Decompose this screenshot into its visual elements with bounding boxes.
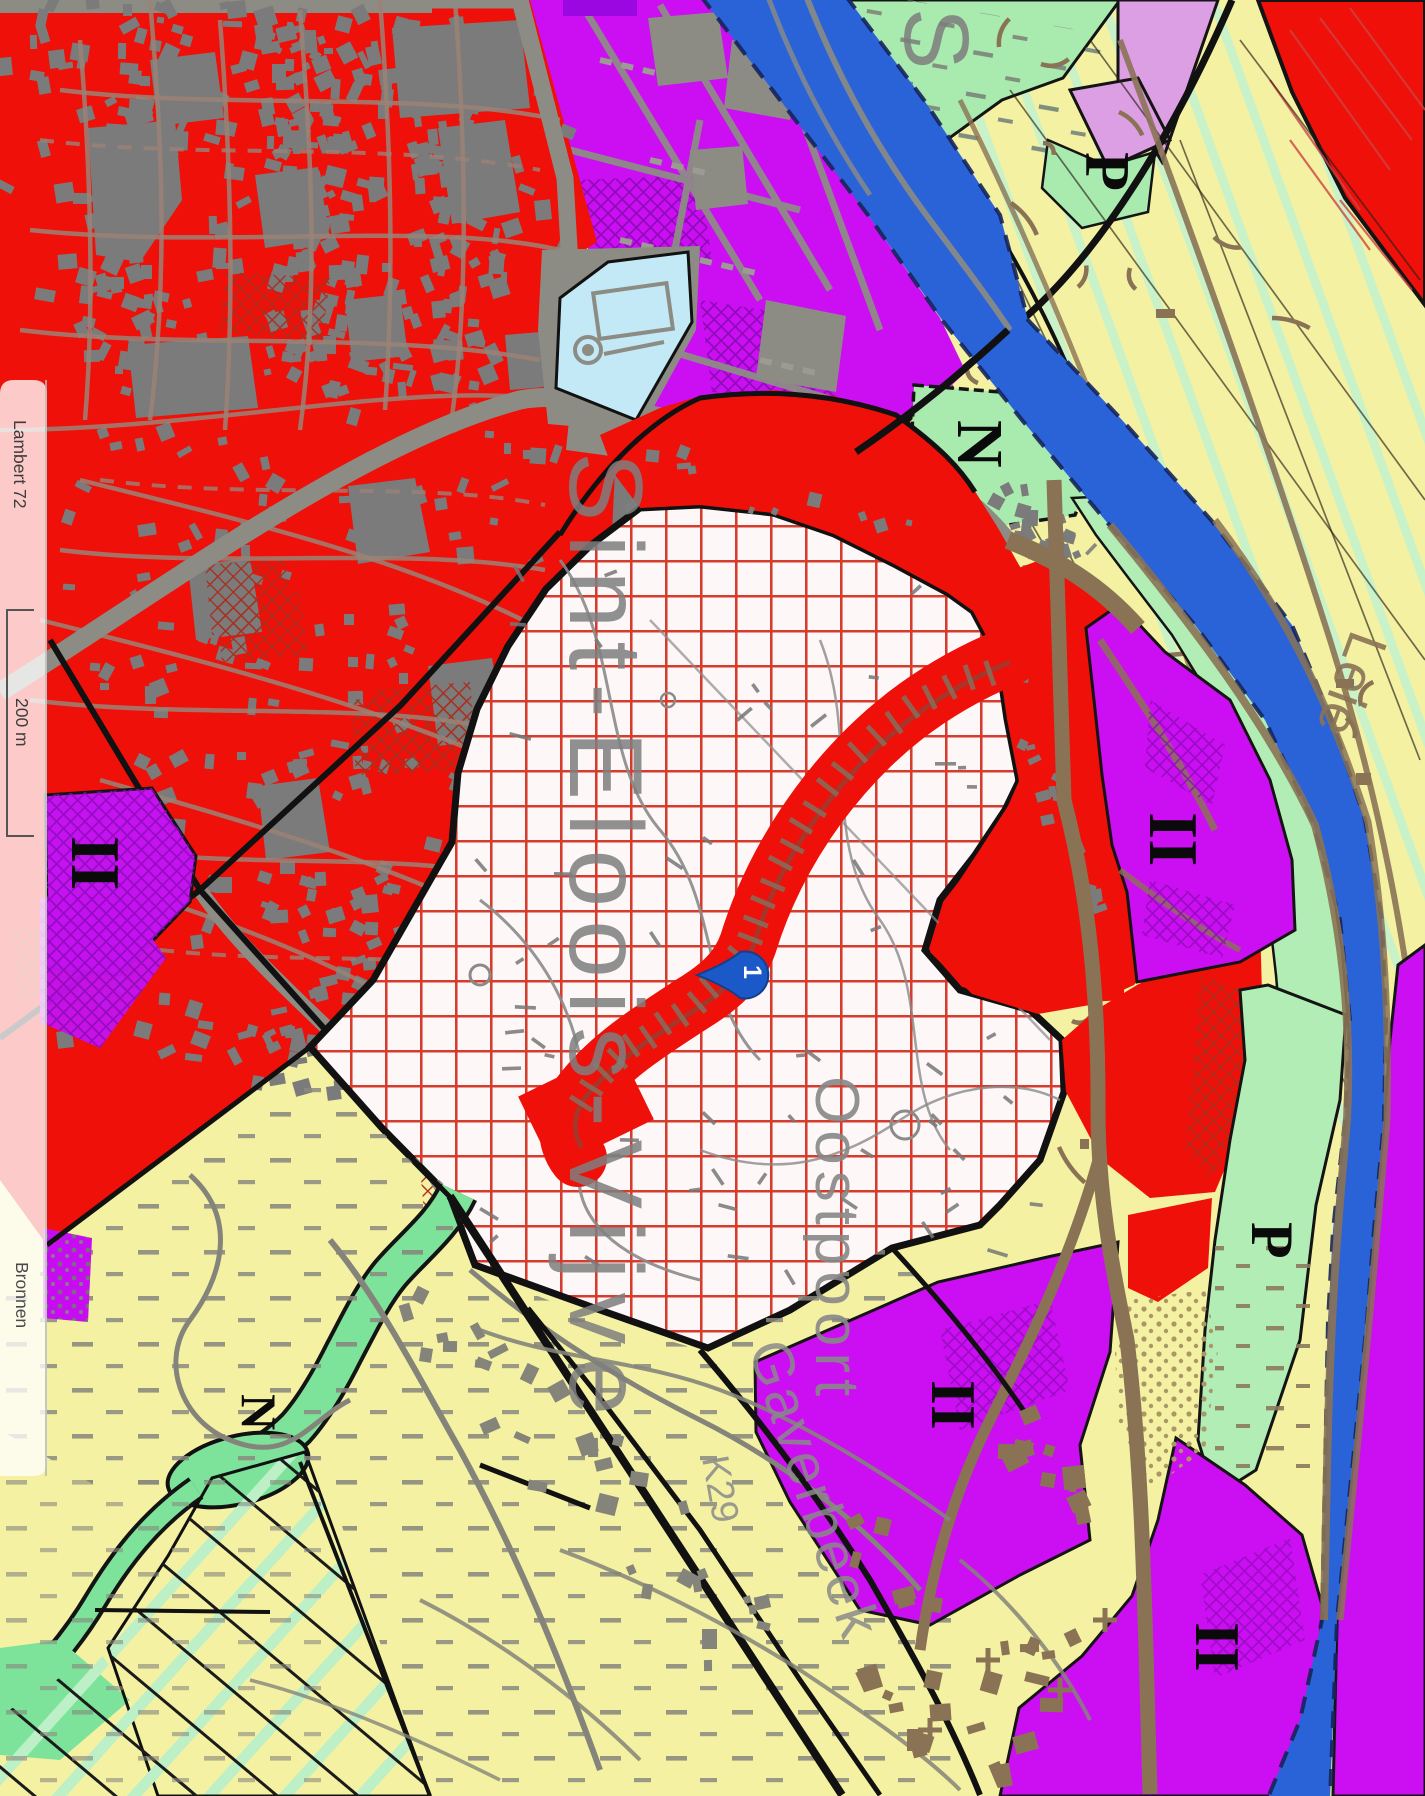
svg-text:P: P [1072,152,1143,191]
svg-text:II: II [56,836,133,890]
svg-text:1: 1 [738,965,766,979]
svg-text:Oostpoort: Oostpoort [802,1076,871,1402]
svg-text:N: N [943,420,1016,468]
svg-text:Bronnen: Bronnen [12,1262,32,1328]
svg-text:II: II [918,1380,989,1430]
svg-text:N: N [231,1394,287,1430]
svg-text:S: S [885,8,987,69]
svg-text:P: P [1239,1222,1305,1259]
svg-text:Sint-Eloois-Vijve: Sint-Eloois-Vijve [547,452,663,1428]
svg-text:200 m: 200 m [12,698,32,747]
svg-text:II: II [1134,812,1211,866]
svg-text:Lambert 72: Lambert 72 [10,420,30,509]
svg-text:II: II [1182,1622,1253,1672]
